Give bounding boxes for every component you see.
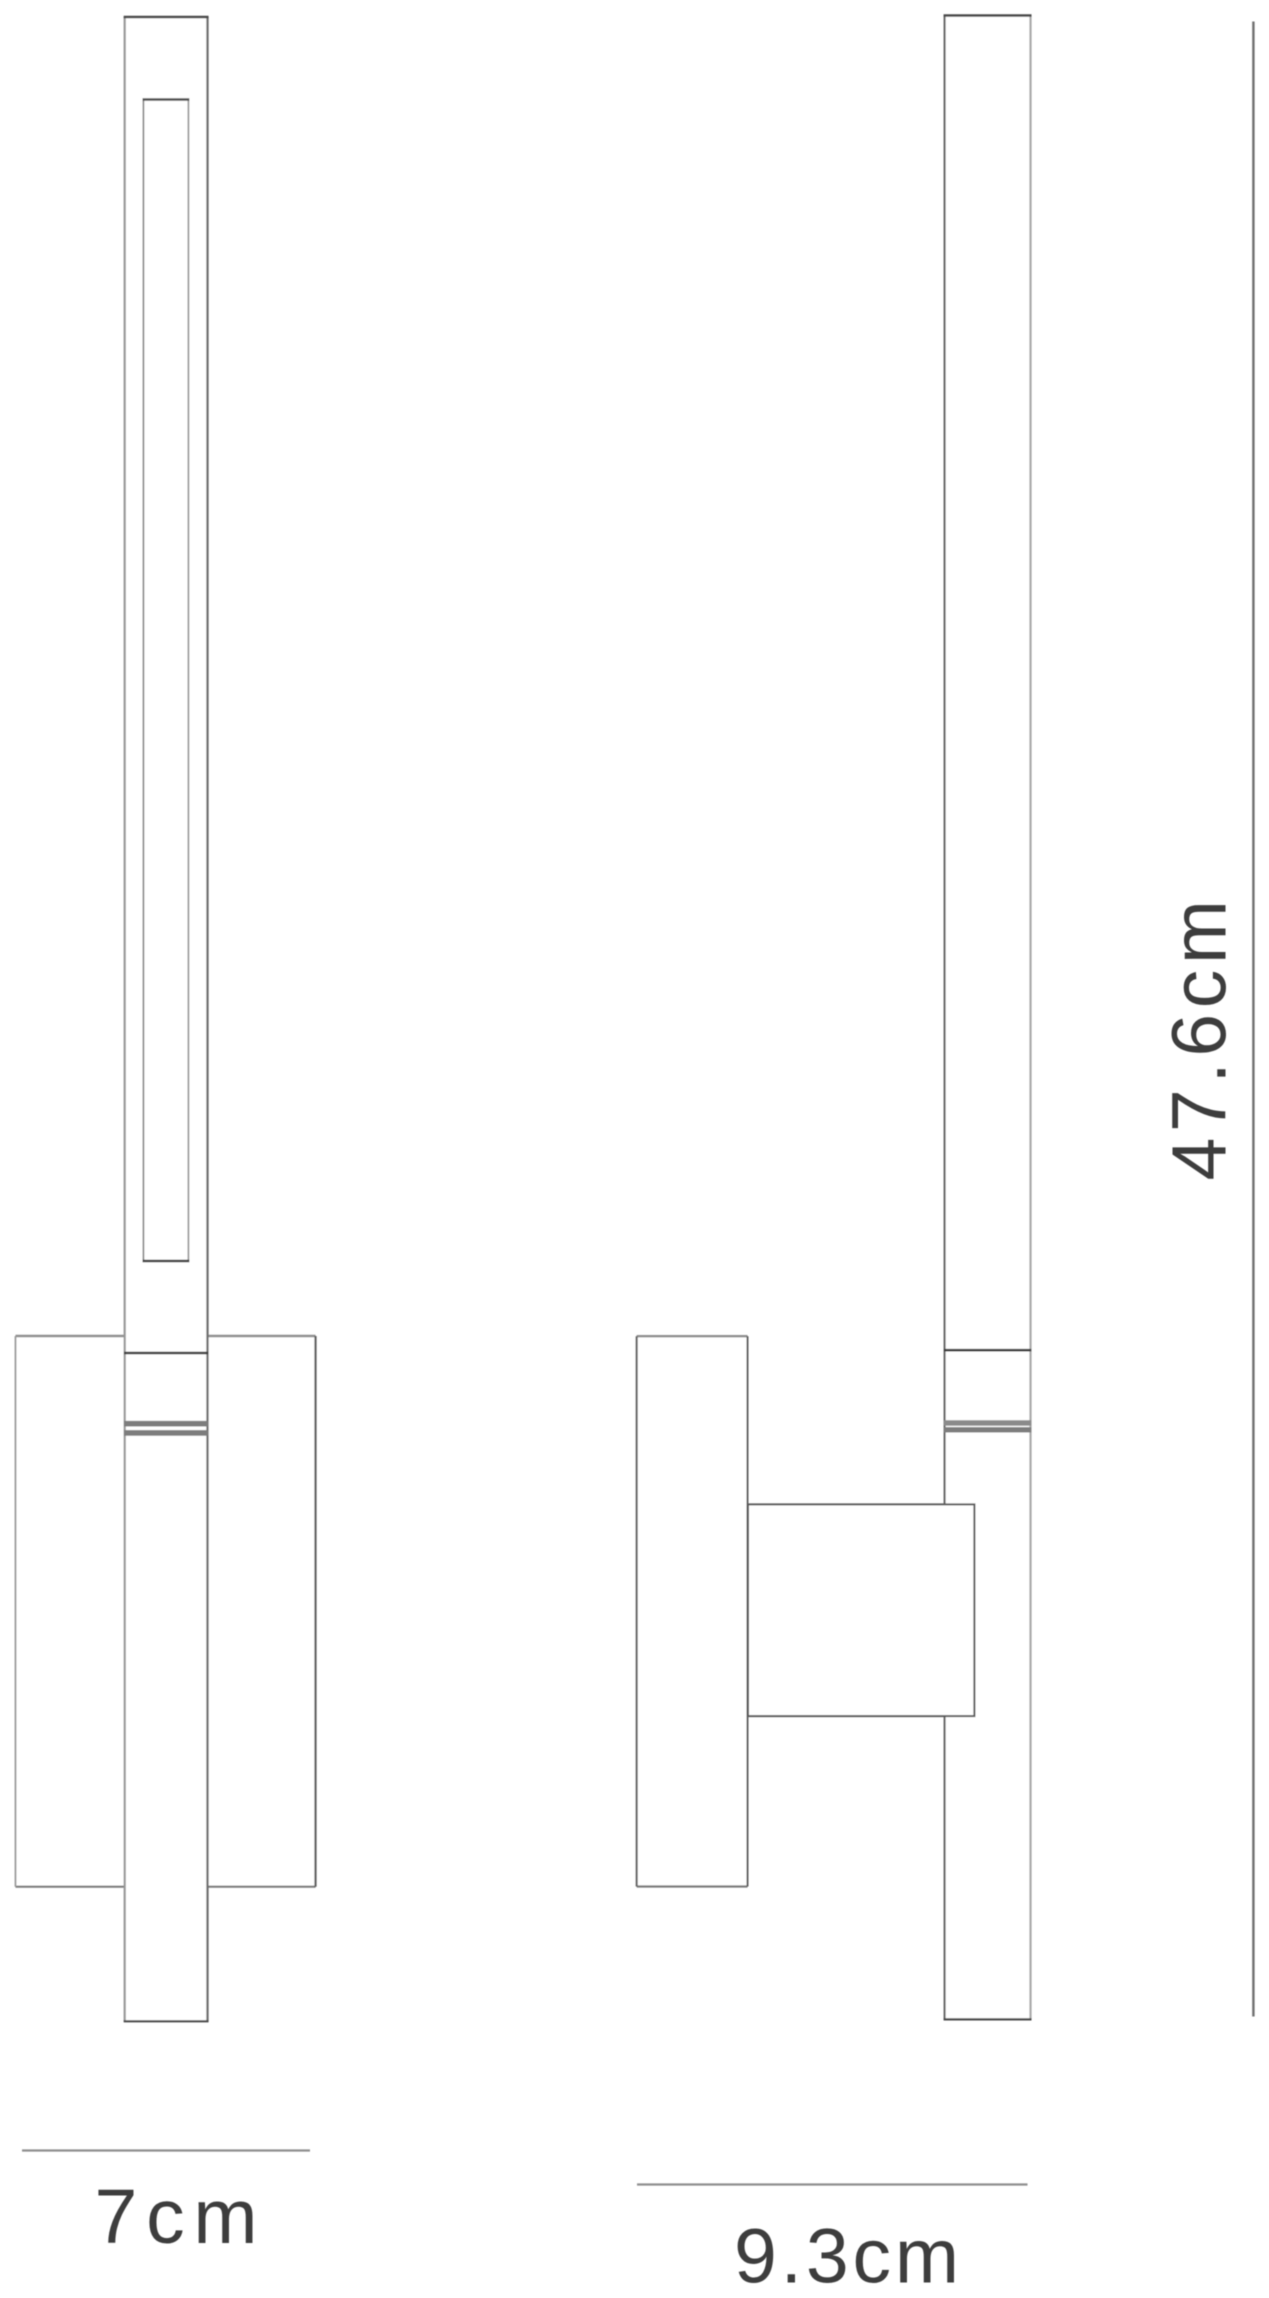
svg-text:9.3cm: 9.3cm <box>734 2214 959 2298</box>
svg-text:7cm: 7cm <box>95 2174 258 2260</box>
svg-text:47.6cm: 47.6cm <box>1157 900 1243 1181</box>
